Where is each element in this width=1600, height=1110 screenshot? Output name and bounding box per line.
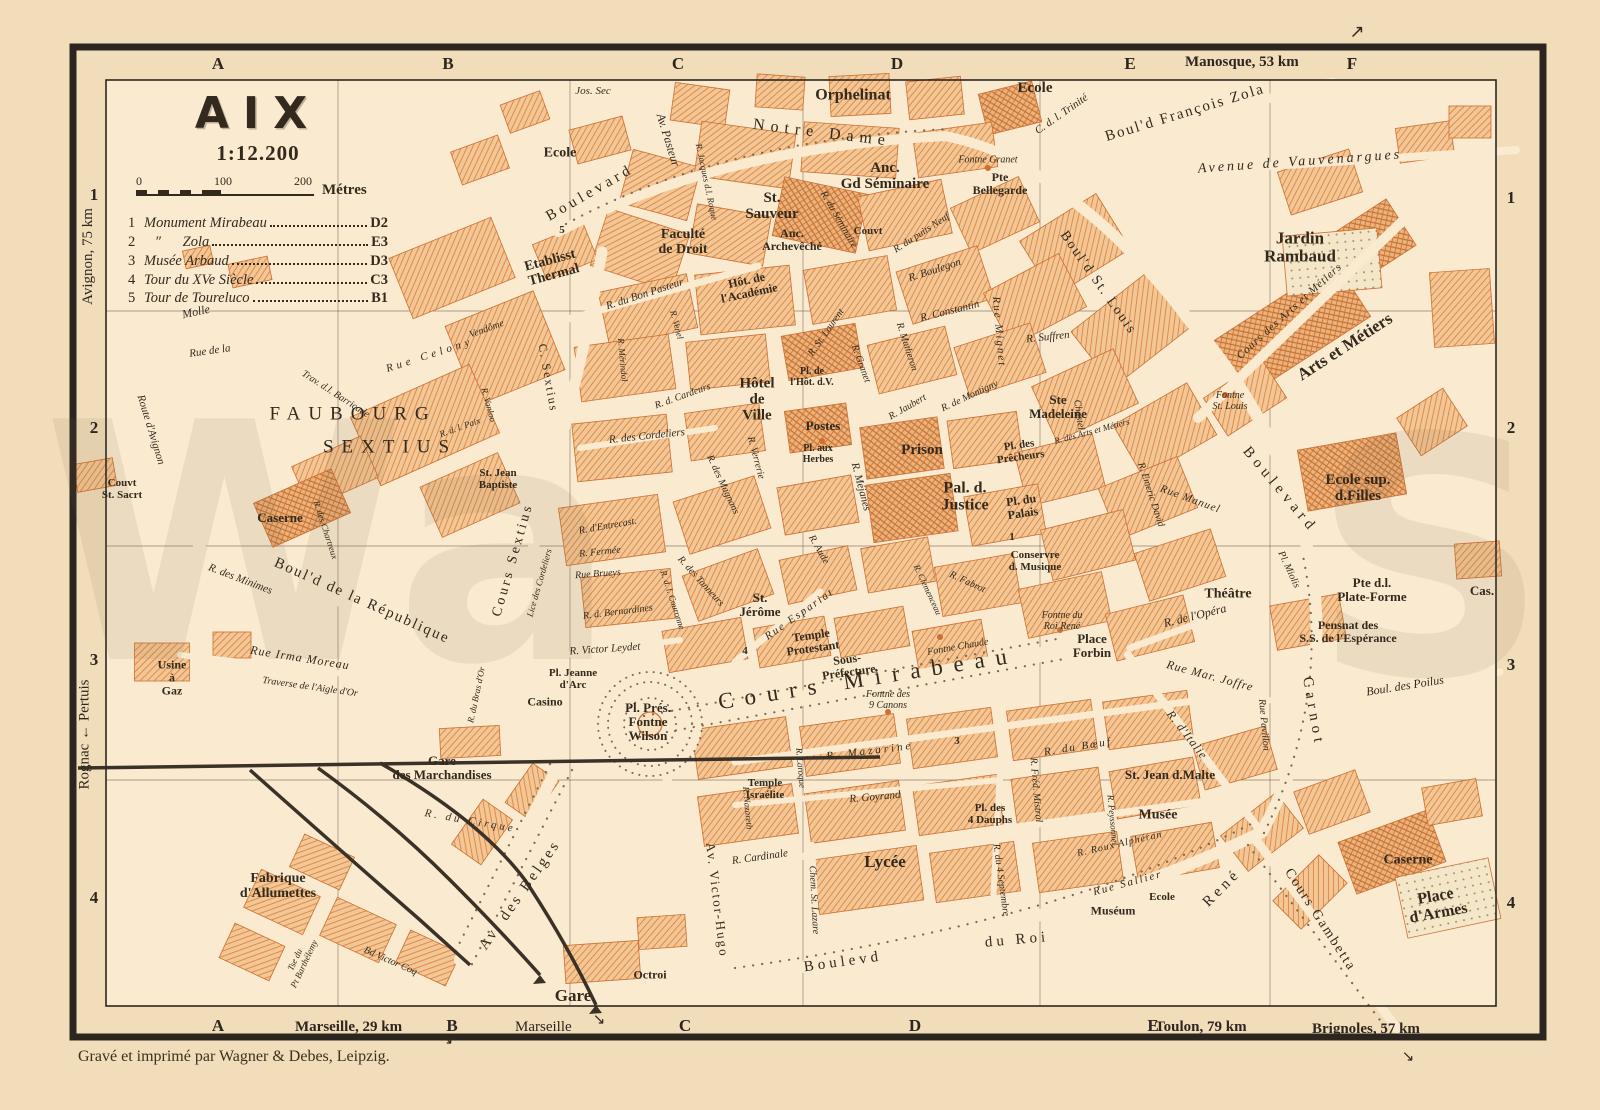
map-label: Faculté de Droit [658,227,707,257]
map-label: Ecole sup. d.Filles [1325,472,1390,504]
scale-tick-0: 0 [136,174,142,189]
map-label: Caserne [1384,852,1433,867]
legend-item: 3Musée ArbaudD3 [128,252,388,271]
map-label: FAUBOURG [269,405,436,426]
map-label: R. St. Laurent [807,307,847,358]
map-label: Carnot [1299,676,1327,749]
map-label: Pensnat des S.S. de l'Espérance [1299,619,1396,645]
map-label: Fontne Granet [958,156,1017,167]
map-label: R. des Magnans [704,454,741,517]
map-label: R. Mérindol [615,338,628,382]
map-label: R. Suffren [1026,330,1071,346]
map-label: R. Vanloo [479,387,497,423]
map-label: Fontne du Roi René [1042,611,1083,633]
map-label: Boul'd François Zola [1103,81,1267,145]
map-label: Hôt. de l'Académie [717,268,778,305]
map-label: Pl. aux Herbes [803,444,834,466]
map-label: Pl. Miolis [1275,550,1301,590]
map-label: R. du Bon Pasteur [605,277,685,313]
map-label: R. Roux Alphéran [1076,830,1163,860]
map-label: Prison [901,442,943,458]
map-label: Avenue de Vauvenargues [1197,147,1402,176]
map-label: Pte Bellegarde [973,171,1028,197]
map-label: Musée [1139,807,1178,822]
map-label: C. d. l. Trinité [1033,92,1090,137]
map-label: Jardin Rambaud [1264,230,1336,267]
map-label: du Roi [984,929,1050,951]
map-label: Lycée [864,853,906,871]
map-label: R. d. Cardeurs [654,382,713,412]
map-label: R. Granet [848,344,872,385]
map-label: R. des Cordeliers [608,427,685,447]
map-label: Boul. des Poilus [1365,673,1444,698]
map-label: R. des Arts et Métiers [1053,417,1130,446]
map-label: Hôtel de Ville [740,376,775,425]
title-block: AIX 1:12.200 0 100 200 Métres 1Monument … [128,88,388,308]
map-label: Pl. des 4 Dauphs [968,803,1012,827]
map-label: R. Méjanes [848,462,872,513]
map-label: R. d. l. Couronne [658,569,686,631]
map-label: St. Jean d.Malte [1125,768,1215,782]
map-label: R. Cardinale [731,848,789,868]
map-label: Vendôme [468,319,506,341]
map-label: Rue de la [189,343,232,361]
scale-unit: Métres [322,182,367,199]
map-label: Rue Pavillon [1255,699,1270,752]
map-label: Chem. St. Lazare [806,865,820,934]
map-label: R. du 4 Septembre [990,843,1011,917]
map-label: ↗ [1349,22,1364,41]
map-label: Pl. de l'Hôt. d.V. [790,367,833,389]
map-label: Cas. [1470,584,1494,598]
scale-bar: 0 100 200 Métres [136,176,380,198]
map-label: Anc. Gd Séminaire [841,160,929,192]
map-label: R. du Bœuf [1043,737,1113,759]
map-label: Muséum [1091,905,1136,918]
map-legend: 1Monument MirabeauD22 ″ ZolaE33Musée Arb… [128,214,388,308]
map-label: Arts et Métiers [1294,309,1396,384]
map-label: R. Fabrot [947,570,986,596]
map-label: R. des Chartreux [311,500,339,561]
map-canvas[interactable]: Wa S Manosque, 53 km Marseille, 29 km Ma… [0,0,1600,1105]
map-label: Couvt St. Sacrt [102,478,142,502]
map-label: Postes [806,419,841,433]
map-label: Pal. d. Justice [941,480,988,515]
scale-bar-line [136,189,314,196]
map-label: Rue Irma Moreau [249,644,350,673]
map-label: R. Boulegon [907,257,962,285]
scale-tick-100: 100 [214,174,232,189]
map-label: R. du Cirque [424,808,517,836]
map-label: R. Mazarine [826,741,914,763]
map-label: Fabrique d'Allumettes [240,871,316,901]
map-label: R. Verrerie [744,436,766,481]
map-label: Boulevd [803,948,883,975]
map-label: Fontne des 9 Canons [866,690,910,712]
map-label: R. Goyrand [849,790,901,806]
map-label: Ecole [1149,892,1175,904]
map-label: C. Sextius [536,343,561,414]
map-label: Av. des Belges [476,837,564,953]
map-label: R. Jaubert [887,393,928,423]
map-label: Cours Gambetta [1281,866,1359,974]
map-label: Casino [527,696,562,709]
attribution: Gravé et imprimé par Wagner & Debes, Lei… [78,1048,390,1066]
map-label: R. des Minimes [206,562,273,597]
map-title: AIX [128,88,388,139]
legend-item: 1Monument MirabeauD2 [128,214,388,233]
map-label: Orphelinat [815,86,891,103]
map-label: ↘ [593,1012,606,1028]
map-label: Route d'Avignon [134,394,166,467]
map-label: Octroi [633,969,666,982]
map-label: Pl. des Prêcheurs [995,437,1045,467]
map-label: ↘ [1402,1049,1415,1065]
map-label: R. du Bras d'Or [466,666,487,724]
map-label: Place Forbin [1073,632,1111,660]
map-label: R. de l'Opéra [1162,602,1227,630]
map-label: Rue Manuel [1158,484,1222,517]
map-label: Boul'd St. Louis [1057,228,1140,337]
map-label: 3 [954,736,960,748]
map-label: ↘ [441,1032,454,1048]
map-label: Théâtre [1204,586,1251,601]
map-label: Boul'd de la République [272,555,453,647]
map-label: Gare [555,987,592,1005]
map-label: Usine à Gaz [158,659,187,698]
map-label: Pl. Prés. Fontne Wilson [625,701,671,743]
map-label: 4 [742,646,748,658]
map-label: Place d'Armes [1405,883,1469,927]
map-label: Rue Mignet [989,296,1007,368]
map-label: Boulevard [543,161,636,224]
map-label: SEXTIUS [323,438,457,459]
map-label: Couvt [854,226,883,238]
map-label: 5 [559,225,565,237]
map-label: St. Jérôme [739,591,780,619]
map-label: R. Constantin [919,299,981,325]
map-label: Gare des Marchandises [392,754,491,782]
map-label: R. des Tanneurs [675,555,726,610]
map-scale-ratio: 1:12.200 [128,141,388,166]
map-label: Conservre d. Musique [1009,550,1062,574]
map-label: Ecole [544,145,577,160]
map-label: Jos. Sec [575,86,610,98]
map-label: Pte d.l. Plate-Forme [1337,576,1406,604]
map-label: St. Sauveur [745,190,798,222]
map-label: R. Venel [667,309,684,340]
map-label: R. de Montigny [940,379,1000,415]
legend-item: 2 ″ ZolaE3 [128,233,388,252]
map-label: Notre Dame [752,116,892,150]
map-label: 1 [1009,532,1015,544]
map-label: René [1200,866,1245,911]
map-label: Lice des Cordeliers [526,548,555,618]
map-label: Av. Victor-Hugo [703,842,731,959]
map-label: R. du puits Neuf [892,212,952,256]
map-label: Pl. du Palais [1005,492,1039,522]
legend-item: 4Tour du XVe SiècleC3 [128,271,388,290]
map-label: R. d'Entrecast. [578,517,638,538]
map-label: R. d'Italie [1164,708,1210,762]
map-label: R. Matheron [893,321,919,372]
map-label: R. Fréd. Mistral [1027,757,1043,823]
map-label: Fontne St. Louis [1212,391,1247,413]
map-label: R. Laroque [793,748,806,789]
map-label: R. Fermée [579,545,622,560]
map-label: St. Jean Baptiste [479,468,518,492]
map-label: Ecole [1018,80,1053,96]
map-label: Tse du Pt Barthélemy [280,934,319,989]
map-label: Boulevard [1239,444,1320,537]
map-label: R. d. Bernardines [583,603,654,622]
map-label: Av. Pasteur [654,112,682,168]
map-label: R. Victor Leydet [569,642,641,659]
map-label: Caserne [257,511,303,525]
map-label: R. du Séminaire [817,190,858,251]
map-label: Rue Mar. Joffre [1165,658,1255,694]
map-label: Rue Brueys [575,568,621,582]
map-label: Rue Celony [385,336,475,375]
map-label: Etablisst Thermal [523,247,581,290]
map-label: R. Jacques d.l. Roque [693,143,719,221]
map-label: Bd Victor Coq [362,945,418,978]
map-label: Pl. Jeanne d'Arc [549,668,597,692]
scale-tick-200: 200 [294,174,312,189]
map-label: R. Aude [805,534,830,567]
map-label: Anc. Archevêché [762,227,822,253]
map-label: R. Clemenceau [911,563,943,616]
legend-item: 5Tour de TourelucoB1 [128,289,388,308]
map-label: Traverse de l'Aigle d'Or [262,676,359,700]
map-label: R. Peyssonnel [1105,794,1119,845]
